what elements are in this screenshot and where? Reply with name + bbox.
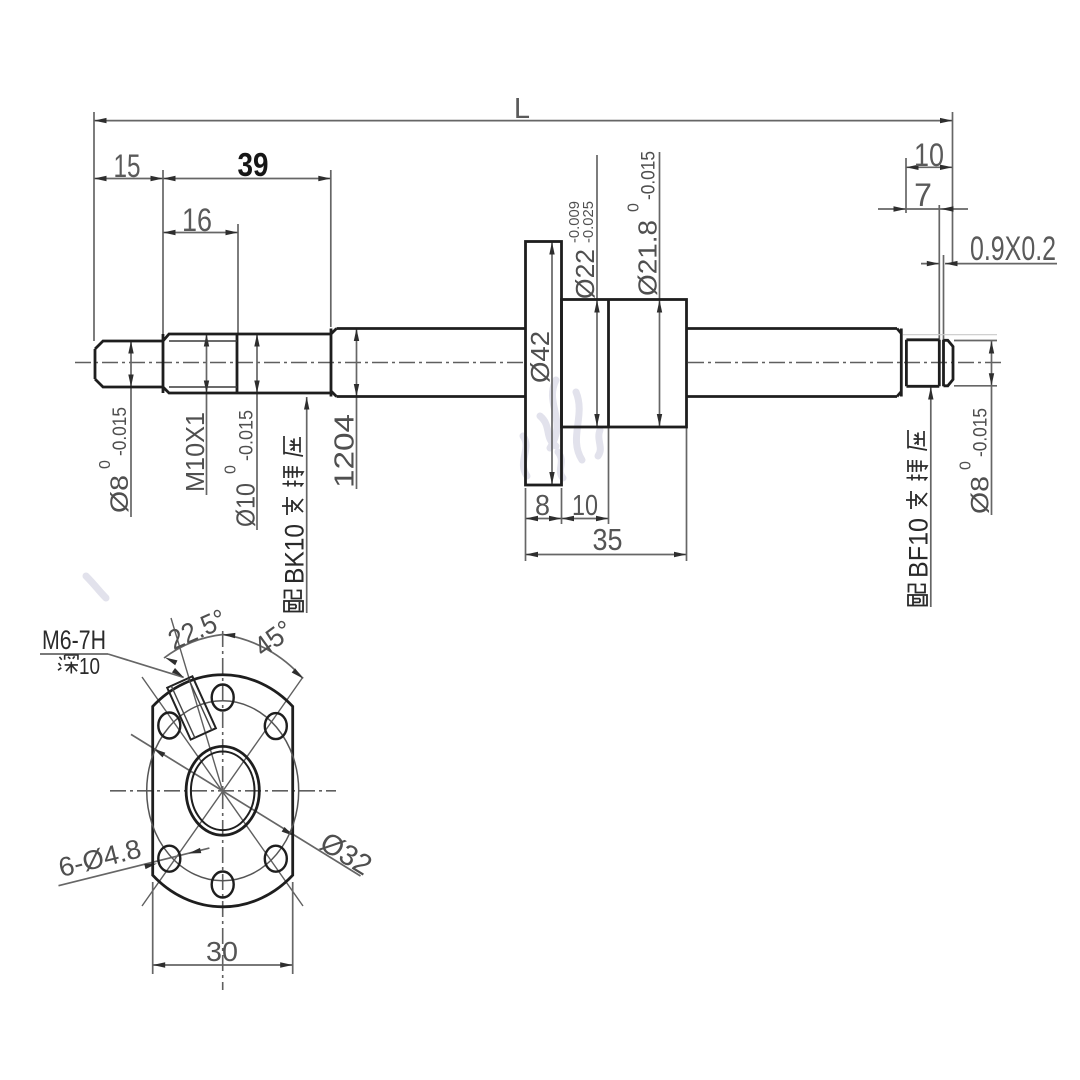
svg-text:0: 0 [958, 461, 975, 470]
svg-text:30: 30 [206, 936, 238, 967]
svg-text:Ø8: Ø8 [967, 476, 995, 514]
svg-text:1204: 1204 [329, 414, 360, 488]
svg-text:16: 16 [182, 202, 212, 238]
svg-text:10: 10 [914, 137, 944, 173]
svg-text:M10X1: M10X1 [180, 412, 210, 492]
svg-text:15: 15 [114, 148, 141, 184]
svg-text:0: 0 [223, 465, 240, 474]
svg-text:-0.015: -0.015 [971, 408, 992, 457]
svg-text:Ø42: Ø42 [525, 331, 555, 383]
svg-text:0: 0 [97, 460, 114, 469]
svg-text:0.9X0.2: 0.9X0.2 [970, 230, 1056, 268]
svg-text:BF10: BF10 [904, 518, 934, 578]
svg-text:Ø8: Ø8 [106, 475, 134, 513]
svg-text:L: L [514, 93, 530, 125]
svg-text:10: 10 [572, 490, 598, 522]
svg-text:35: 35 [593, 522, 623, 557]
svg-text:BK10: BK10 [280, 524, 310, 584]
svg-text:0: 0 [626, 203, 643, 212]
svg-text:-0.015: -0.015 [237, 410, 258, 461]
svg-text:8: 8 [535, 490, 550, 522]
svg-text:39: 39 [238, 146, 269, 183]
svg-text:10: 10 [79, 653, 100, 679]
svg-text:-0.015: -0.015 [639, 151, 660, 200]
svg-text:Ø21.8: Ø21.8 [633, 220, 663, 296]
svg-text:Ø22: Ø22 [570, 249, 600, 299]
svg-text:7: 7 [914, 177, 932, 213]
svg-text:-0.025: -0.025 [580, 201, 597, 243]
svg-text:M6-7H: M6-7H [42, 625, 106, 655]
svg-text:Ø10: Ø10 [231, 483, 261, 527]
svg-text:-0.015: -0.015 [110, 407, 131, 456]
